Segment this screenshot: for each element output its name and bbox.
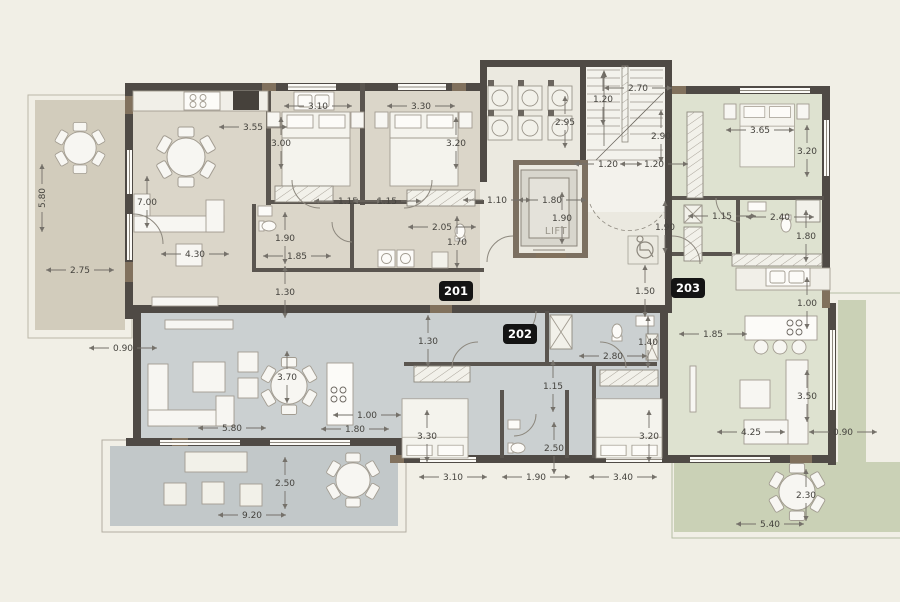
svg-text:2.50: 2.50 — [544, 444, 564, 454]
svg-text:202: 202 — [508, 327, 532, 341]
svg-text:203: 203 — [676, 281, 700, 295]
svg-text:3.30: 3.30 — [411, 102, 431, 112]
kitchen-island-202 — [327, 363, 353, 425]
svg-text:5.80: 5.80 — [38, 188, 48, 208]
unit-badge-203: 203 — [671, 278, 705, 298]
svg-text:2.95: 2.95 — [555, 118, 575, 128]
svg-text:1.15: 1.15 — [712, 212, 732, 222]
svg-text:1.90: 1.90 — [526, 473, 546, 483]
svg-text:3.65: 3.65 — [750, 126, 770, 136]
svg-text:1.90: 1.90 — [552, 214, 572, 224]
svg-text:2.70: 2.70 — [628, 84, 648, 94]
floor-plan-canvas: 3.553.103.303.003.201.151.151.102.051.70… — [0, 0, 900, 602]
svg-text:1.85: 1.85 — [703, 330, 723, 340]
svg-text:1.00: 1.00 — [357, 411, 377, 421]
shower-tray — [432, 252, 448, 268]
svg-text:3.20: 3.20 — [446, 139, 466, 149]
lift — [521, 170, 577, 250]
floor-plan-svg: 3.553.103.303.003.201.151.151.102.051.70… — [0, 0, 900, 602]
svg-text:1.80: 1.80 — [542, 196, 562, 206]
tv-unit-202 — [165, 320, 233, 329]
svg-text:4.25: 4.25 — [741, 428, 761, 438]
svg-text:1.80: 1.80 — [345, 425, 365, 435]
svg-text:3.10: 3.10 — [443, 473, 463, 483]
svg-text:1.15: 1.15 — [377, 197, 397, 207]
svg-text:9.20: 9.20 — [242, 511, 262, 521]
svg-text:201: 201 — [444, 284, 468, 298]
hob-icon — [184, 92, 220, 110]
coffee-table — [193, 362, 225, 392]
svg-text:2.75: 2.75 — [70, 266, 90, 276]
svg-text:1.50: 1.50 — [635, 287, 655, 297]
tv-unit-201 — [152, 297, 218, 306]
svg-text:3.00: 3.00 — [271, 139, 291, 149]
svg-text:3.10: 3.10 — [308, 102, 328, 112]
svg-text:2.30: 2.30 — [796, 491, 816, 501]
svg-text:3.20: 3.20 — [797, 147, 817, 157]
utility-203 — [684, 205, 702, 261]
svg-text:1.20: 1.20 — [593, 95, 613, 105]
lift-label: LIFT — [545, 226, 568, 237]
coffee-table — [740, 380, 770, 408]
unit-badge-202: 202 — [503, 324, 537, 344]
svg-text:3.40: 3.40 — [613, 473, 633, 483]
svg-text:7.00: 7.00 — [137, 198, 157, 208]
svg-text:3.55: 3.55 — [243, 123, 263, 133]
svg-text:3.30: 3.30 — [417, 432, 437, 442]
svg-text:2.40: 2.40 — [770, 213, 790, 223]
svg-text:1.30: 1.30 — [418, 337, 438, 347]
dim-unit_202-3.10: 3.10 — [419, 473, 487, 483]
svg-text:1.85: 1.85 — [287, 252, 307, 262]
svg-text:2.50: 2.50 — [275, 479, 295, 489]
svg-text:0.90: 0.90 — [833, 428, 853, 438]
svg-text:2.90: 2.90 — [651, 132, 671, 142]
svg-text:0.90: 0.90 — [113, 344, 133, 354]
svg-text:1.40: 1.40 — [638, 338, 658, 348]
dim-unit_202-1.90: 1.90 — [502, 473, 570, 483]
svg-text:1.90: 1.90 — [275, 234, 295, 244]
dim-unit_202-3.40: 3.40 — [589, 473, 657, 483]
island-203 — [745, 316, 817, 340]
svg-text:1.10: 1.10 — [487, 196, 507, 206]
svg-text:1.20: 1.20 — [644, 160, 664, 170]
svg-text:2.80: 2.80 — [603, 352, 623, 362]
basin — [258, 206, 272, 216]
svg-text:1.90: 1.90 — [655, 223, 675, 233]
oven-icon — [233, 91, 259, 110]
svg-text:1.70: 1.70 — [447, 238, 467, 248]
svg-text:1.00: 1.00 — [797, 299, 817, 309]
tv-panel-203 — [690, 366, 696, 412]
svg-text:3.70: 3.70 — [277, 373, 297, 383]
svg-text:1.80: 1.80 — [796, 232, 816, 242]
svg-text:4.30: 4.30 — [185, 250, 205, 260]
svg-text:3.20: 3.20 — [639, 432, 659, 442]
svg-text:1.15: 1.15 — [543, 382, 563, 392]
svg-text:2.05: 2.05 — [432, 223, 452, 233]
svg-text:1.20: 1.20 — [598, 160, 618, 170]
svg-text:3.50: 3.50 — [797, 392, 817, 402]
svg-text:5.40: 5.40 — [760, 520, 780, 530]
svg-text:5.80: 5.80 — [222, 424, 242, 434]
svg-text:1.30: 1.30 — [275, 288, 295, 298]
unit-badge-201: 201 — [439, 281, 473, 301]
skylight-shaft-panels — [488, 80, 572, 140]
